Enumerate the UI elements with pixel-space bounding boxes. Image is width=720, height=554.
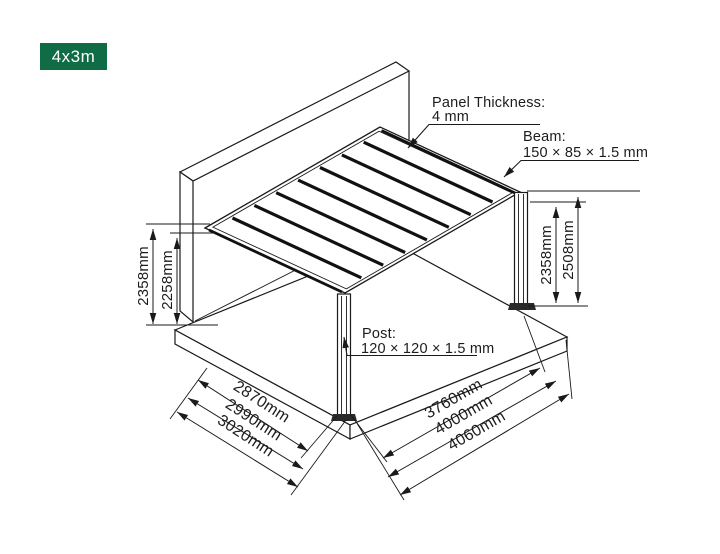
dim-left-outer-label: 2358mm: [135, 246, 152, 306]
post-value: 120 × 120 × 1.5 mm: [361, 341, 494, 357]
size-badge-label: 4x3m: [52, 47, 96, 67]
size-badge: 4x3m: [40, 43, 107, 70]
right-post-base-plate: [508, 303, 536, 310]
dim-left-inner-label: 2258mm: [159, 250, 176, 310]
dim-right-outer-label: 2508mm: [560, 220, 577, 280]
dim-right-inner-label: 2358mm: [538, 225, 555, 285]
panel-thickness-value: 4 mm: [432, 109, 469, 125]
diagram-page: 2358mm 2258mm 2358mm 2508mm 2870mm 2990m…: [0, 0, 720, 554]
panel-thickness-leader-arrow: [408, 125, 540, 149]
right-post: [508, 193, 536, 311]
post-title: Post:: [362, 326, 396, 342]
beam-value: 150 × 85 × 1.5 mm: [523, 145, 648, 161]
beam-leader-arrow: [504, 161, 639, 178]
beam-callout: Beam: 150 × 85 × 1.5 mm: [504, 129, 648, 177]
pergola-dimension-diagram: 2358mm 2258mm 2358mm 2508mm 2870mm 2990m…: [0, 0, 720, 554]
dim-group-right-height: 2358mm 2508mm: [527, 191, 640, 306]
beam-title: Beam:: [523, 129, 566, 145]
